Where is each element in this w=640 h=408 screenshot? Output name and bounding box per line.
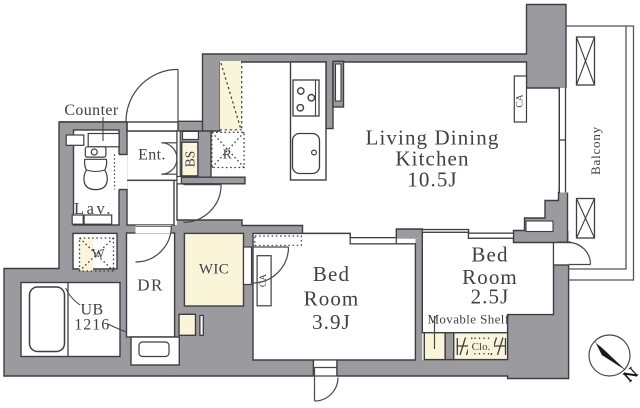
svg-text:Counter: Counter (64, 102, 119, 119)
svg-text:2.5J: 2.5J (471, 285, 510, 309)
svg-text:W: W (92, 246, 105, 261)
svg-text:Balcony: Balcony (588, 126, 603, 175)
svg-text:DR: DR (137, 276, 164, 295)
svg-text:10.5J: 10.5J (407, 168, 457, 192)
svg-text:BS: BS (182, 151, 197, 168)
svg-text:Ent.: Ent. (138, 147, 166, 164)
svg-text:Clo.: Clo. (472, 341, 491, 353)
svg-text:3.9J: 3.9J (312, 310, 351, 334)
svg-text:Movable Shelf: Movable Shelf (427, 312, 509, 327)
svg-text:Bed: Bed (313, 262, 350, 286)
svg-text:Bed: Bed (471, 243, 508, 267)
svg-text:CA: CA (516, 94, 526, 107)
svg-text:1216: 1216 (74, 317, 110, 334)
svg-text:CA: CA (259, 274, 269, 287)
svg-text:Room: Room (304, 287, 360, 311)
svg-text:WIC: WIC (199, 262, 229, 278)
svg-text:R: R (223, 147, 232, 162)
svg-text:Lav.: Lav. (74, 199, 113, 218)
